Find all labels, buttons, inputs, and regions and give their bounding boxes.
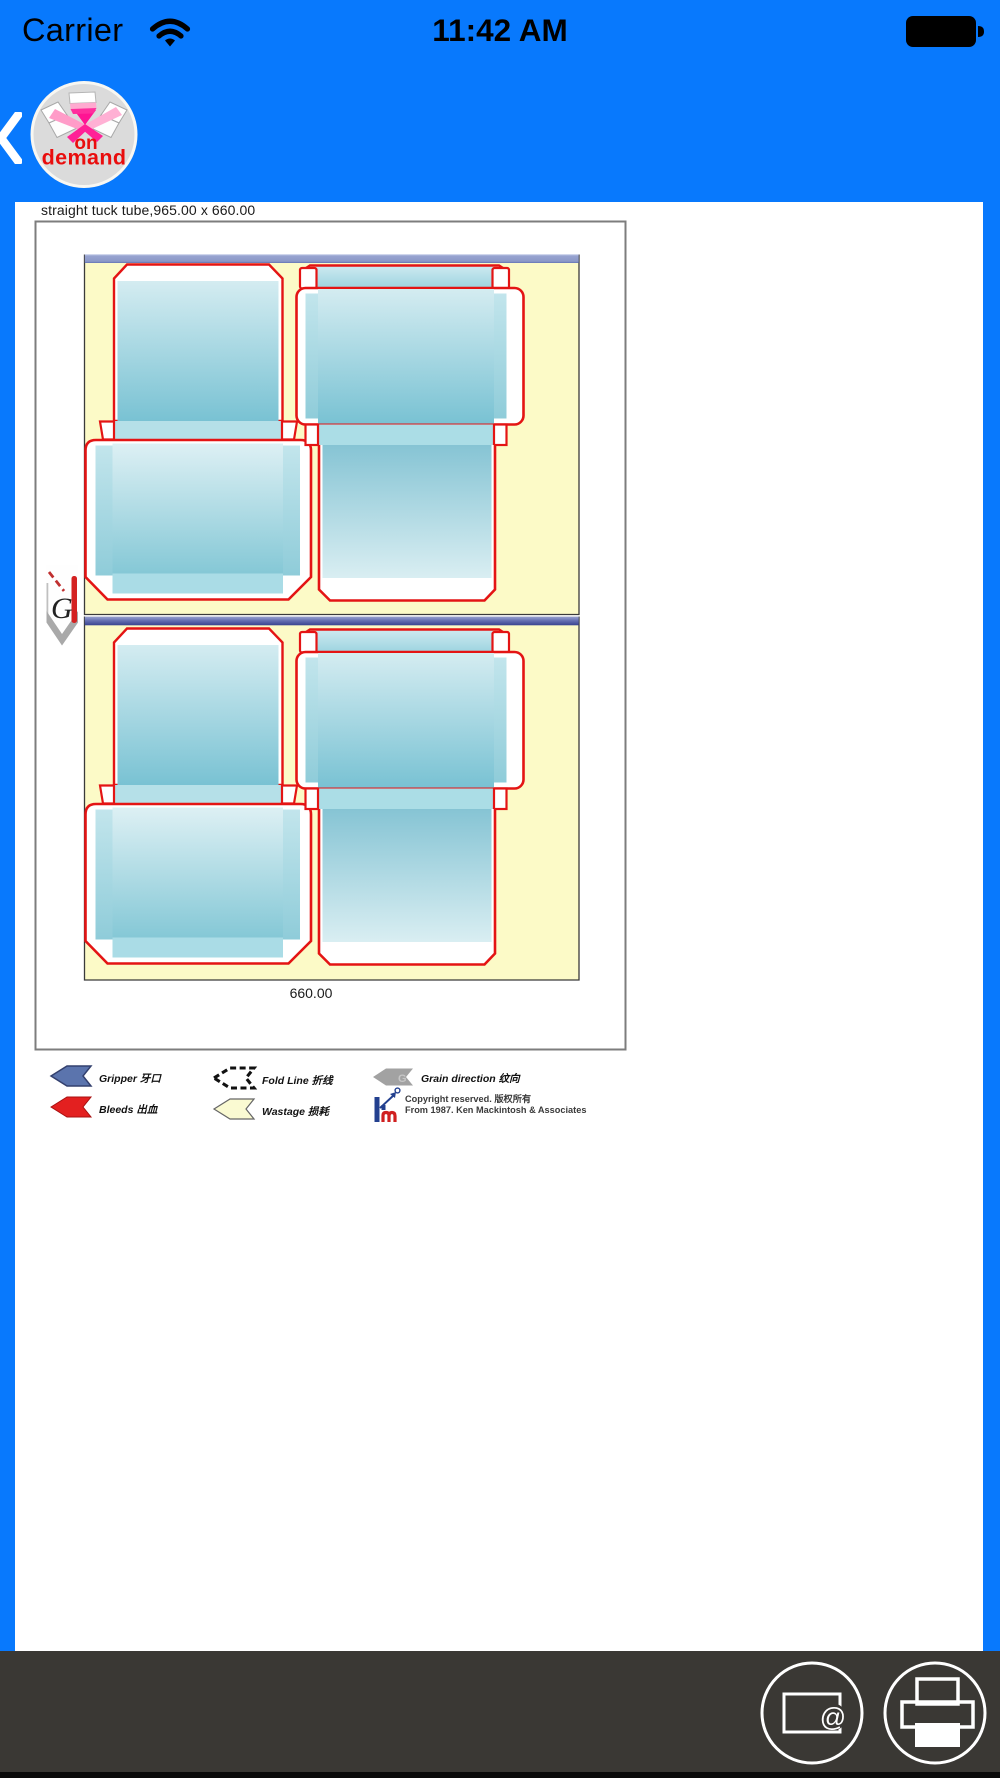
svg-text:From 1987. Ken Mackintosh & As: From 1987. Ken Mackintosh & Associates xyxy=(405,1105,586,1115)
svg-text:Copyright reserved. 版权所有: Copyright reserved. 版权所有 xyxy=(405,1093,531,1104)
svg-text:G: G xyxy=(51,592,73,625)
svg-text:@: @ xyxy=(820,1702,846,1732)
svg-text:660.00: 660.00 xyxy=(290,985,333,1001)
svg-text:Gripper 牙口: Gripper 牙口 xyxy=(99,1073,162,1085)
svg-text:G: G xyxy=(398,1073,407,1085)
svg-text:Bleeds 出血: Bleeds 出血 xyxy=(99,1103,159,1116)
svg-text:Grain direction 纹向: Grain direction 纹向 xyxy=(421,1072,521,1085)
svg-text:Wastage 损耗: Wastage 损耗 xyxy=(262,1105,330,1118)
svg-text:Fold Line 折线: Fold Line 折线 xyxy=(262,1074,334,1087)
